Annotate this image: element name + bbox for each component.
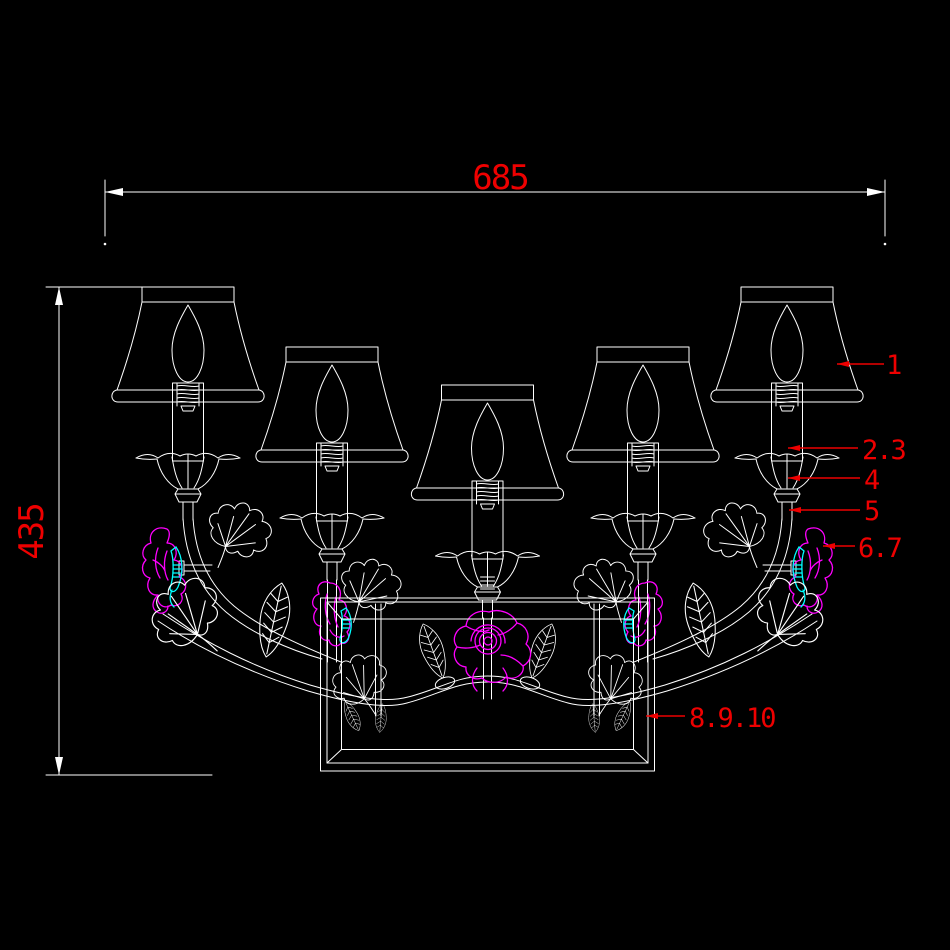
callout-shade-text: 1 <box>886 350 901 381</box>
callout-flower: 6.7 <box>823 533 902 564</box>
callout-flower-text: 6.7 <box>858 533 902 564</box>
part-callouts: 1 2.3 4 5 6.7 8.9.10 <box>646 350 906 734</box>
center-rose <box>454 611 530 691</box>
callout-bobeche-text: 4 <box>864 465 879 496</box>
callout-bobeche: 4 <box>788 465 879 496</box>
lamp-center <box>411 385 563 618</box>
callout-frame-text: 8.9.10 <box>689 703 775 734</box>
cad-canvas: 685 435 1 2.3 4 5 6.7 8.9.10 <box>0 0 950 950</box>
dimension-height-value: 435 <box>12 504 52 559</box>
callout-candle-tube: 2.3 <box>788 435 906 466</box>
side-left <box>112 287 488 733</box>
callout-stem: 5 <box>789 496 879 527</box>
dimension-height: 435 <box>12 287 212 775</box>
dimension-width: 685 <box>104 158 887 245</box>
center-lamp-stem <box>481 577 495 699</box>
back-frame <box>321 598 655 771</box>
wall-lamp-drawing: 685 435 1 2.3 4 5 6.7 8.9.10 <box>0 0 950 950</box>
callout-stem-text: 5 <box>864 496 879 527</box>
dimension-width-value: 685 <box>472 158 527 198</box>
callout-candle-tube-text: 2.3 <box>862 435 906 466</box>
callout-frame: 8.9.10 <box>646 703 775 734</box>
